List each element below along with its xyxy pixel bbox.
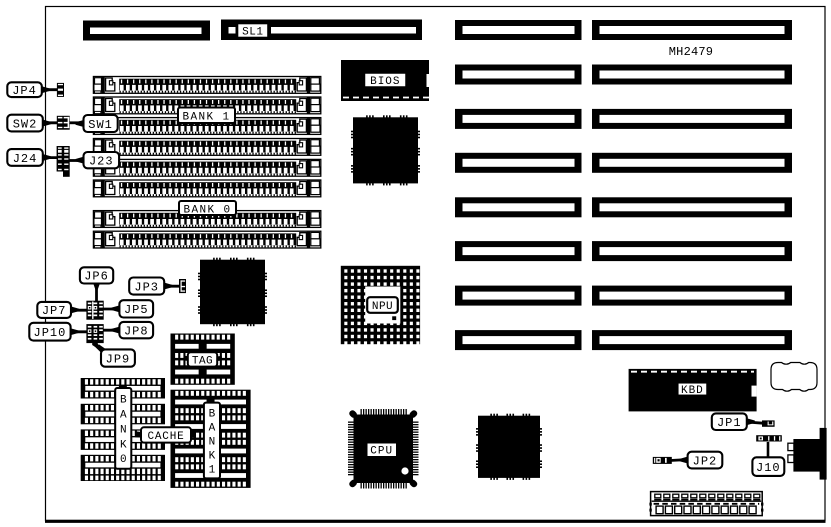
- svg-text:JP8: JP8: [124, 324, 149, 338]
- svg-text:SL1: SL1: [242, 27, 263, 39]
- svg-text:JP1: JP1: [717, 416, 742, 430]
- svg-text:A: A: [209, 423, 216, 435]
- svg-text:JP5: JP5: [124, 303, 149, 317]
- svg-text:A: A: [120, 409, 127, 421]
- svg-text:MH2479: MH2479: [669, 45, 713, 59]
- svg-text:BANK 0: BANK 0: [183, 204, 231, 216]
- svg-text:J23: J23: [89, 154, 114, 168]
- svg-text:K: K: [120, 439, 127, 451]
- svg-text:SW2: SW2: [13, 117, 38, 131]
- svg-text:BIOS: BIOS: [370, 76, 400, 88]
- svg-text:JP4: JP4: [12, 84, 37, 98]
- svg-text:0: 0: [120, 454, 127, 466]
- svg-text:JP7: JP7: [42, 304, 67, 318]
- svg-text:B: B: [120, 394, 127, 406]
- svg-text:1: 1: [209, 464, 216, 476]
- svg-text:SW1: SW1: [88, 118, 113, 132]
- svg-text:K: K: [209, 450, 216, 462]
- svg-text:NPU: NPU: [372, 301, 393, 313]
- svg-text:B: B: [209, 409, 216, 421]
- svg-text:JP2: JP2: [693, 454, 718, 468]
- svg-text:KBD: KBD: [681, 385, 704, 397]
- svg-text:JP10: JP10: [34, 326, 67, 340]
- svg-text:J24: J24: [13, 152, 38, 166]
- svg-text:J10: J10: [756, 461, 781, 475]
- svg-text:CACHE: CACHE: [147, 431, 184, 443]
- svg-text:N: N: [120, 424, 127, 436]
- svg-text:TAG: TAG: [192, 355, 213, 367]
- svg-text:BANK 1: BANK 1: [182, 112, 230, 124]
- svg-text:JP3: JP3: [134, 280, 159, 294]
- svg-text:JP6: JP6: [84, 270, 109, 284]
- svg-text:CPU: CPU: [370, 446, 393, 458]
- svg-text:N: N: [209, 436, 216, 448]
- svg-text:JP9: JP9: [106, 352, 131, 366]
